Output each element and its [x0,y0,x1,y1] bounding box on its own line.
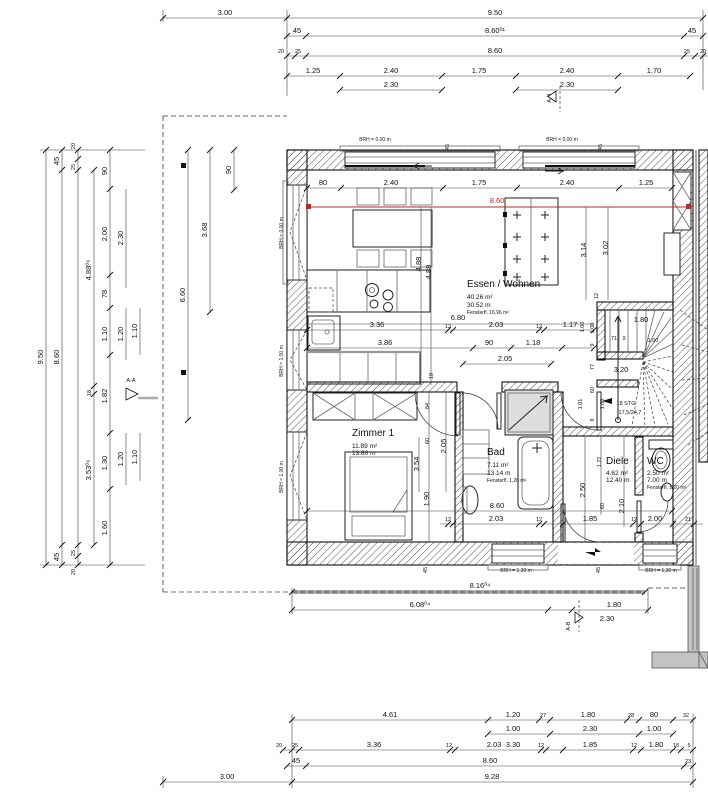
dim-label: 18 [673,743,679,749]
dim-label: 20 [71,569,77,575]
dim-label: 20 [71,143,77,149]
dim-label: 1.85 [583,740,598,749]
room-area: 2.50 m² [647,470,670,477]
room-area: 40.26 m² [467,294,493,301]
dim-label: 1.01 [578,399,584,410]
dim-label: 6.80 [451,313,466,322]
dim-label: 1.00 [590,323,596,334]
room-name: Zimmer 1 [352,428,395,439]
dim-label: 80 [650,710,658,719]
dim-label: 3.00 [220,772,235,781]
dim-label: 12 [538,743,544,749]
dim-label: 1.17 [563,320,578,329]
dim-label: 8.60 [483,756,498,765]
dim-label: 25 [71,164,77,170]
dim-label: 2.30 [384,80,399,89]
bed [345,452,412,540]
dim-label: 1.00 [647,724,662,733]
dim-label: 2.50 [578,483,587,498]
room-name: Essen / Wohnen [467,279,540,290]
dim-label: 1.80 [581,710,596,719]
dim-label: 78 [100,290,109,298]
dim-label: 2.30 [116,231,125,246]
stair-note: 17,5/24,7 [619,410,642,416]
red-dim-label: 8.60 [490,196,505,205]
dim-label: 1.25 [306,66,321,75]
dim-label: 5 [687,743,690,749]
dim-label: 45 [598,144,604,150]
dim-label: 60 [600,503,606,509]
dim-label: 2.30 [600,614,615,623]
dim-label: 1.70 [647,66,662,75]
dim-label: 3.53⁰⁶ [84,460,93,481]
room-name: Bad [487,447,505,458]
dims-bottom: 4.61 1.20 27 1.80 28 80 32 1.00 2.30 1.0… [160,710,696,788]
dim-label: 6.08⁰⁴ [410,600,431,609]
dim-label: 2.40 [560,66,575,75]
dim-label: 20 [276,743,282,749]
door-leaf-wc [637,501,641,532]
dim-label: 12 [536,517,542,523]
door-leaf-diele [597,392,601,430]
chair [357,250,379,267]
cooktop-burner [366,284,379,297]
dim-label: 1.80 [607,600,622,609]
brh-label: BRH = 1,00 m [279,345,285,377]
exterior-structures [652,566,708,668]
dim-label: 84 [425,403,431,409]
dim-label: 1.10 [130,450,139,465]
tub-faucet-icon [532,443,542,453]
dim-label: 25 [684,49,690,55]
brh-label: BRH = 0,00 m [279,217,285,249]
room-area: 4.62 m² [606,470,629,477]
dim-label: 1.22 [597,457,603,468]
dim-label: 71 [611,336,617,342]
section-label: A-A [126,378,136,384]
dim-label: 90 [485,338,493,347]
dim-label: 21 [685,517,691,523]
dim-label: 8.60⁰¹ [485,26,506,35]
dim-label: 3.36 [367,740,382,749]
section-label: A-B [566,621,572,631]
dim-label: 25 [292,743,298,749]
dim-label: 60 [590,387,596,393]
entrance-opening [558,543,634,564]
dim-label: 4.88 [414,257,423,272]
chair [384,250,406,267]
dim-label: 45 [292,756,300,765]
dim-label: 2.40 [384,66,399,75]
dim-label: 8.16⁰⁴ [470,581,491,590]
dim-label: 4.88⁰⁶ [84,260,93,281]
dim-label: 8.60 [52,350,61,365]
dim-label: 9.50 [36,350,45,365]
chair [357,188,379,205]
brh-label: BRH = 0,00 m [359,137,391,143]
dim-label: 2.30 [560,80,575,89]
floor-plan-svg: 8.60 3.00 9.50 45 8.60⁰¹ 45 20 25 8.60 2… [0,0,708,807]
room-perimeter: 30.52 m [467,302,491,309]
dim-label: 45 [293,26,301,35]
dim-label: 1.20 [116,452,125,467]
dim-label: 45 [423,567,429,573]
dim-label: 2.00 [100,227,109,242]
brh-label: BRH = 1,30 m [645,568,677,574]
cooktop-burner [383,290,393,300]
brh-label: BRH = 0,00 m [546,137,578,143]
red-dimension-line: 8.60 [306,196,691,209]
floor-plan: 8.60 3.00 9.50 45 8.60⁰¹ 45 20 25 8.60 2… [0,0,708,807]
dim-label: 1.80 [649,740,664,749]
dim-label: 32 [683,713,689,719]
island-unit [503,198,558,285]
dim-label: 2.03 [489,320,504,329]
dim-label: 3.68 [200,223,209,238]
dim-label: 3.20 [614,365,629,374]
room-perimeter: 13.80 m [352,450,376,457]
dim-label: 25 [295,49,301,55]
dim-label: 3.30 [506,740,521,749]
room-area: 11.89 m² [352,443,378,450]
dim-label: 1.80 [634,315,649,324]
wardrobe [313,393,417,420]
room-window-area: Fensterfl. 1,20 m² [487,478,527,484]
room-window-area: Fensterfl. 1,20 m² [647,485,687,491]
bathroom-fixtures [462,390,553,514]
dim-label: 18 [87,390,93,396]
dim-label: 2.05 [439,439,448,454]
dim-label: 1.82 [100,389,109,404]
section-arrow-icon [126,388,138,400]
chair [411,188,432,205]
dim-label: 1.10 [100,327,109,342]
brh-label: BRH = 1,00 m [279,461,285,493]
dim-label: 12 [631,743,637,749]
room-perimeter: 7.00 m [647,477,667,484]
dim-label: 2.00 [648,514,663,523]
dim-label: 4.88 [424,265,433,280]
dim-label: 80 [319,178,327,187]
dim-label: 3.36 [370,320,385,329]
room-name: Diele [606,456,629,467]
dim-label: 2.30 [583,724,598,733]
dim-label: 2.03 [489,514,504,523]
dim-label: 4.61 [383,710,398,719]
stair-note: 18 STG [617,401,636,407]
dim-label: 1.75 [472,66,487,75]
neighbor-party-wall [699,150,708,462]
kitchen [307,270,430,384]
blanket-fold [393,490,407,512]
dim-label: 8.60 [488,46,503,55]
cooktop-burner [370,300,378,308]
dims-mid: 8.16⁰⁴ 6.08⁰⁴ 1.80 2.30 [289,581,651,623]
dim-label: 9 [590,418,596,421]
dim-label: 77 [590,364,596,370]
dim-label: 1.00 [506,724,521,733]
dim-label: 1.18 [526,338,541,347]
dim-label: 9 [590,343,596,346]
dims-left: 9.50 45 8.60 45 20 25 25 20 4.88⁰⁶ 18 3.… [36,143,237,575]
dim-label: 1.30 [100,456,109,471]
dim-label: 45 [445,144,451,150]
dim-label: 1.25 [639,178,654,187]
pillow [352,516,405,536]
dim-label: 12 [445,517,451,523]
dim-label: 6.60 [178,288,187,303]
dim-label: 28 [628,713,634,719]
dim-label: 1.00 [648,338,659,344]
dim-label: 23 [685,759,691,765]
dims-top: 3.00 9.50 45 8.60⁰¹ 45 20 25 8.60 25 20 … [160,8,708,96]
dim-label: 3.86 [378,338,393,347]
dim-label: 1.00 [580,322,586,333]
room-perimeter: 12.40 m [606,477,630,484]
room-window-area: Fensterfl. 16,96 m² [467,310,509,316]
cooktop-burner [384,303,393,312]
dim-label: 2.05 [498,354,513,363]
dining-table [353,210,432,247]
dim-label: 9 [622,336,625,342]
dim-label: 25 [71,550,77,556]
dim-label: 2.03 [487,740,502,749]
dim-label: 45 [688,26,696,35]
dim-label: 1.85 [583,514,598,523]
dim-label: 3.02 [601,241,610,256]
dim-label: 12 [594,293,600,299]
dim-label: 8.60 [490,501,505,510]
dim-label: 1.75 [472,178,487,187]
dim-label: 9.50 [488,8,503,17]
dim-label: 1.20 [506,710,521,719]
dim-label: 60 [425,438,431,444]
dim-label: 1.20 [116,327,125,342]
room-area: 7.11 m² [487,462,509,469]
dim-label: 90 [224,166,233,174]
dim-label: 3.14 [579,243,588,258]
bath-cabinet [463,430,489,474]
dim-label: 45 [52,157,61,165]
dim-label: 20 [700,49,706,55]
dim-label: 1.00 [600,399,606,410]
dim-label: 12 [446,743,452,749]
dim-label: 3.00 [218,8,233,17]
dim-label: 45 [596,567,602,573]
chair [384,188,406,205]
dim-label: 12 [631,517,637,523]
dim-label: 2.40 [560,178,575,187]
dim-label: 3.54 [412,457,421,472]
dim-label: 1.10 [130,324,139,339]
tall-unit-dashed [309,288,333,312]
bad-sink [462,486,478,514]
brh-label: BRH = 1,30 m [500,568,532,574]
dim-label: 27 [540,713,546,719]
dim-label: 2.40 [384,178,399,187]
dim-label: 1.90 [422,492,431,507]
dim-label: 1.60 [100,521,109,536]
dim-label: 20 [278,49,284,55]
dining-set [353,188,432,267]
dim-label: 18 [429,373,435,379]
dim-label: 12 [536,324,542,330]
room-perimeter: 13.14 m [487,470,511,477]
dim-label: 9.28 [485,772,500,781]
bedroom-furniture [313,393,417,540]
dim-label: 90 [100,167,109,175]
room-name: WC [647,456,664,467]
dim-label: 12 [445,324,451,330]
dim-label: 45 [52,553,61,561]
